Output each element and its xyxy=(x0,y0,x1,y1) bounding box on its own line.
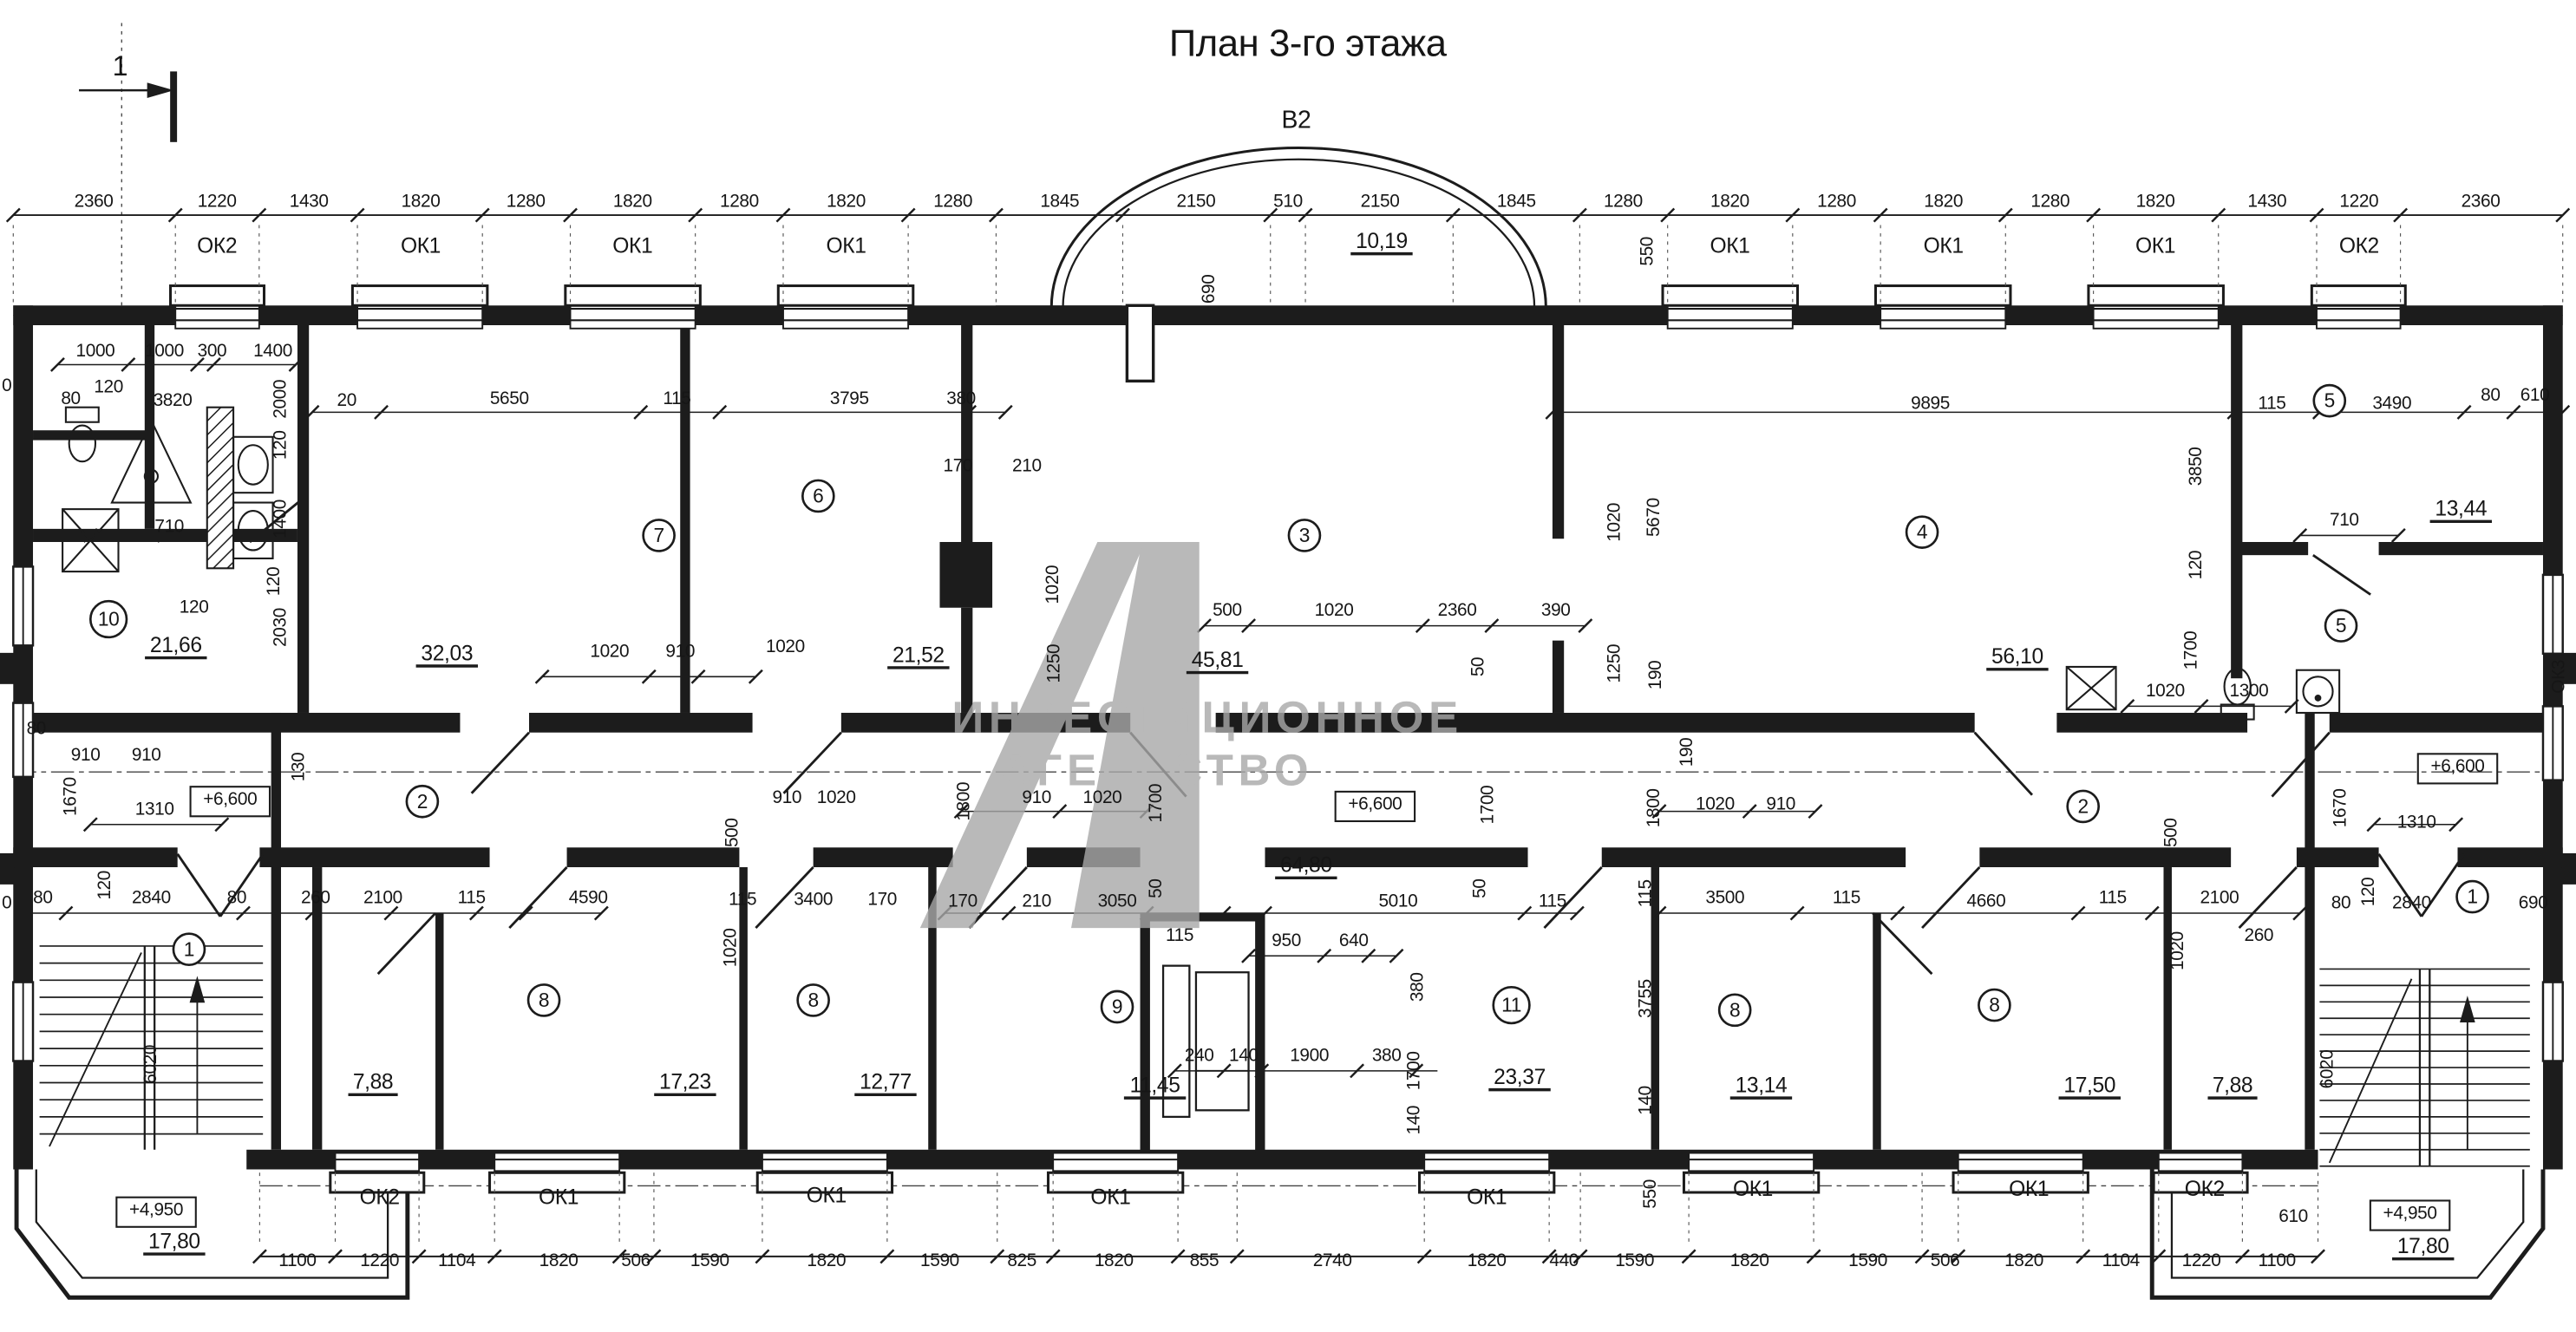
room-number: 8 xyxy=(1989,994,1999,1016)
dimension-label: ОК1 xyxy=(401,235,441,258)
wall xyxy=(996,305,1122,325)
wall xyxy=(567,847,740,867)
dimension-label: ОК1 xyxy=(1924,235,1964,258)
wall xyxy=(529,713,753,733)
room-number: 8 xyxy=(808,989,819,1011)
room-number: 8 xyxy=(539,989,549,1011)
dimension-label: 1820 xyxy=(2004,1250,2043,1270)
room-number: 3 xyxy=(1299,524,1310,546)
dimension-label: ОК1 xyxy=(1710,235,1749,258)
dimension-label: 1020 xyxy=(721,928,741,967)
dimension-label: 1100 xyxy=(2259,1250,2296,1270)
dimension-label: ОК2 xyxy=(2339,235,2379,258)
dimension-label: 1820 xyxy=(1468,1250,1507,1270)
dimension-label: 120 xyxy=(180,597,209,617)
dimension-label: 1670 xyxy=(60,777,80,816)
dimension-label: 910 xyxy=(1766,794,1795,814)
dimension-label: 140 xyxy=(1636,1086,1656,1115)
dimension-label: 21,66 xyxy=(150,634,202,657)
dimension-label: 20 xyxy=(337,390,356,410)
dimension-label: 1430 xyxy=(290,192,329,212)
dimension-label: 1430 xyxy=(2247,192,2286,212)
dimension-label: 4660 xyxy=(1967,891,2006,911)
dimension-label: ОК1 xyxy=(1090,1185,1130,1209)
dimension-label: 3795 xyxy=(830,388,869,408)
wall xyxy=(2238,542,2308,555)
dimension-label: 3850 xyxy=(2186,447,2206,486)
dimension-label: 115 xyxy=(1166,925,1193,945)
dimension-label: 140 xyxy=(1229,1045,1259,1065)
dimension-label: 190 xyxy=(1677,738,1697,767)
dimension-label: В2 xyxy=(1281,107,1311,134)
dimension-label: 1845 xyxy=(1497,192,1536,212)
dimension-label: 80 xyxy=(61,388,80,408)
dimension-label: 1000 xyxy=(76,341,115,361)
dimension-label: 1820 xyxy=(1924,192,1963,212)
dimension-label: 1820 xyxy=(1710,192,1749,212)
dimension-label: 690 xyxy=(2519,892,2548,912)
dimension-label: 3490 xyxy=(2372,394,2411,414)
dimension-label: 1310 xyxy=(135,799,174,819)
dimension-label: 140 xyxy=(1404,1106,1424,1135)
dimension-label: 2360 xyxy=(2462,192,2501,212)
stairs xyxy=(40,946,2530,1166)
dimension-label: 1280 xyxy=(1817,192,1856,212)
dimension-label: 1020 xyxy=(766,637,805,656)
dimension-label: 120 xyxy=(271,430,291,460)
dimension-label: 3755 xyxy=(1636,979,1656,1018)
dimension-label: 1590 xyxy=(1848,1250,1887,1270)
dimension-label: ОК2 xyxy=(360,1185,400,1209)
dimension-label: 500 xyxy=(1213,600,1242,620)
dimension-label: 17,80 xyxy=(148,1230,200,1253)
dimension-label: 1280 xyxy=(2030,192,2069,212)
wall xyxy=(1873,913,1880,1150)
wall xyxy=(1602,847,1906,867)
dimension-label: +4,950 xyxy=(129,1200,183,1220)
text-labels: 2360122014301820128018201280182012801845… xyxy=(2,107,2569,1271)
dimension-label: 50 xyxy=(1468,657,1487,676)
dimension-label: +6,600 xyxy=(1348,794,1402,814)
room-number: 9 xyxy=(1112,996,1122,1018)
dimension-label: 610 xyxy=(2279,1206,2308,1226)
wall xyxy=(739,867,747,1150)
dimension-label: 1820 xyxy=(1095,1250,1134,1270)
wall xyxy=(33,430,148,440)
dimension-label: 910 xyxy=(132,745,161,765)
dimension-label: 260 xyxy=(2245,925,2274,945)
wall xyxy=(13,713,460,733)
dimension-label: 2150 xyxy=(1177,192,1216,212)
wall xyxy=(1141,913,1150,1153)
dimension-label: 1250 xyxy=(1605,644,1625,683)
wall xyxy=(1255,913,1265,1153)
dimension-label: 1020 xyxy=(817,787,856,807)
room-number: 6 xyxy=(813,485,823,507)
dimension-label: 115 xyxy=(2099,888,2127,908)
dimension-label: 510 xyxy=(1273,192,1303,212)
wall xyxy=(1979,847,2231,867)
wall xyxy=(1553,641,1564,713)
dimension-label: 855 xyxy=(1190,1250,1219,1270)
dimension-label: 1820 xyxy=(827,192,866,212)
dimension-label: ОК1 xyxy=(539,1185,579,1209)
dimension-label: 50 xyxy=(1469,878,1489,898)
dimension-label: 115 xyxy=(663,388,690,408)
dimension-label: 115 xyxy=(458,888,486,908)
dimension-label: 0 xyxy=(2,892,11,912)
dimension-label: 1020 xyxy=(1605,503,1625,542)
wall xyxy=(13,847,177,867)
wall xyxy=(2457,847,2562,867)
dimension-label: 240 xyxy=(1185,1045,1214,1065)
dimension-label: 115 xyxy=(2258,394,2285,414)
dimension-label: 1020 xyxy=(1043,565,1062,604)
dimension-label: 710 xyxy=(2330,510,2359,530)
wall xyxy=(297,325,309,713)
watermark: ИНВЕСТИЦИОННОЕ АГЕНТСТВО xyxy=(920,542,1463,928)
dimension-label: 2360 xyxy=(1438,600,1477,620)
dimension-label: 64,80 xyxy=(1280,854,1332,878)
dimension-label: 10,19 xyxy=(1356,230,1408,253)
dimension-label: 170 xyxy=(867,890,897,910)
dimension-label: 7,88 xyxy=(353,1071,393,1094)
wall xyxy=(435,913,443,1150)
dimension-label: 1820 xyxy=(807,1250,846,1270)
dimension-label: 910 xyxy=(665,642,695,662)
floor-plan-page: { "title": "План 3-го этажа", "section_m… xyxy=(0,0,2576,1332)
wall xyxy=(1553,325,1564,539)
dimension-label: 1400 xyxy=(271,499,291,539)
dimension-label: 6020 xyxy=(141,1045,160,1084)
dimension-label: 115 xyxy=(1833,888,1860,908)
dimension-label: 115 xyxy=(1636,879,1656,907)
dimension-label: 1670 xyxy=(2331,788,2350,827)
dimension-label: 550 xyxy=(1637,237,1657,266)
dimension-label: 2030 xyxy=(271,608,291,647)
dimension-label: 3400 xyxy=(794,890,833,910)
dimension-label: 120 xyxy=(95,871,114,900)
dimension-label: 1020 xyxy=(2146,681,2185,701)
dimension-label: 380 xyxy=(1372,1045,1402,1065)
dimension-label: 1280 xyxy=(720,192,759,212)
dimension-label: 1310 xyxy=(2397,813,2436,832)
dimension-label: 1250 xyxy=(1044,644,1064,683)
dimension-label: 1280 xyxy=(507,192,546,212)
dimension-label: 170 xyxy=(944,456,973,476)
dimension-label: +6,600 xyxy=(203,789,257,809)
dimension-label: +6,600 xyxy=(2430,756,2484,776)
dimension-label: 910 xyxy=(1022,787,1051,807)
dimension-label: 690 xyxy=(1199,275,1219,304)
dimension-label: 500 xyxy=(2161,818,2181,847)
room-number: 4 xyxy=(1917,520,1927,543)
dimension-label: 910 xyxy=(773,787,802,807)
dimension-label: 3820 xyxy=(154,390,193,410)
dimension-label: 440 xyxy=(1549,1250,1579,1270)
bay-arc xyxy=(1051,147,1546,307)
dimension-label: 32,03 xyxy=(421,642,473,665)
dimension-label: 7,88 xyxy=(2213,1074,2252,1097)
dimension-label: 1700 xyxy=(1478,786,1498,825)
vent-pier xyxy=(1127,305,1153,381)
dimension-label: 1280 xyxy=(933,192,972,212)
dimension-label: ОК2 xyxy=(197,235,237,258)
dimension-label: 910 xyxy=(71,745,101,765)
room-number: 11 xyxy=(1501,994,1521,1016)
dimension-label: 1220 xyxy=(198,192,237,212)
dimension-label: 1020 xyxy=(1315,600,1354,620)
dimension-label: 1020 xyxy=(2167,931,2187,970)
dimension-label: 380 xyxy=(1407,972,1427,1002)
dimension-label: 710 xyxy=(154,517,184,537)
room-number: 1 xyxy=(2467,885,2477,908)
dimension-label: 190 xyxy=(1645,661,1665,690)
room-number: 5 xyxy=(2336,614,2346,637)
room-number: 7 xyxy=(653,524,664,546)
dimension-label: 210 xyxy=(1012,456,1042,476)
dimension-label: 950 xyxy=(1272,930,1301,950)
dimension-label: 120 xyxy=(2358,878,2378,907)
dimension-label: 550 xyxy=(1640,1179,1660,1209)
dimension-label: 5670 xyxy=(1644,498,1664,537)
wall xyxy=(2305,713,2314,1150)
dimension-label: 120 xyxy=(2186,551,2206,580)
dimension-label: 610 xyxy=(2520,385,2550,405)
wall xyxy=(814,847,953,867)
dimension-label: 4590 xyxy=(569,888,608,908)
dimension-label: 1000 xyxy=(145,341,184,361)
toilet-tank-icon xyxy=(66,408,99,422)
dimension-label: 1700 xyxy=(1146,784,1166,823)
wall xyxy=(2231,325,2242,678)
section-mark xyxy=(79,72,176,141)
watermark-line1: ИНВЕСТИЦИОННОЕ xyxy=(951,693,1462,742)
room-number: 5 xyxy=(2324,389,2335,412)
dimension-label: 2840 xyxy=(2392,892,2431,912)
dimension-label: 1845 xyxy=(1040,192,1079,212)
dimension-label: 2150 xyxy=(1361,192,1400,212)
dimension-label: 1900 xyxy=(1290,1045,1329,1065)
dimension-label: 300 xyxy=(198,341,227,361)
dimension-label: 13,44 xyxy=(2435,498,2487,521)
dimension-label: 0 xyxy=(2,375,11,395)
dimension-label: 115 xyxy=(1539,891,1566,911)
dimension-label: 50 xyxy=(1146,878,1166,898)
dimension-label: 1220 xyxy=(2182,1250,2221,1270)
dimension-label: 1590 xyxy=(920,1250,959,1270)
dimension-label: 80 xyxy=(27,719,46,739)
dimension-label: 2000 xyxy=(271,380,291,419)
dimension-label: 5650 xyxy=(490,388,529,408)
dimension-label: 500 xyxy=(722,818,742,847)
dimension-label: ОК1 xyxy=(807,1184,847,1207)
wall xyxy=(2379,542,2543,555)
dimension-label: 1700 xyxy=(2180,631,2200,670)
dimension-label: 380 xyxy=(946,388,976,408)
dimension-label: 1590 xyxy=(1615,1250,1654,1270)
dimension-label: 2100 xyxy=(363,888,402,908)
dimension-label: 1104 xyxy=(2102,1250,2140,1270)
dimension-label: 506 xyxy=(621,1250,651,1270)
dimension-label: 506 xyxy=(1931,1250,1960,1270)
dimension-label: 1100 xyxy=(278,1250,316,1270)
wall xyxy=(939,542,992,608)
bathtub-icon xyxy=(207,408,233,569)
room-number: 2 xyxy=(417,790,428,813)
dimension-label: 12,77 xyxy=(860,1071,912,1094)
dimension-label: 45,81 xyxy=(1192,649,1244,672)
dimension-label: 825 xyxy=(1007,1250,1036,1270)
dimension-label: 1820 xyxy=(613,192,652,212)
dimension-label: 170 xyxy=(948,891,977,911)
dimension-label: 6020 xyxy=(2318,1050,2337,1089)
dimension-label: 1020 xyxy=(1083,787,1122,807)
dimension-label: 1820 xyxy=(2136,192,2175,212)
room-number: 2 xyxy=(2078,795,2089,818)
dimension-label: 9895 xyxy=(1911,394,1950,414)
dimension-label: ОК1 xyxy=(1733,1178,1773,1201)
room-number: 10 xyxy=(98,608,120,630)
dimension-label: 1220 xyxy=(2339,192,2378,212)
wall xyxy=(259,847,489,867)
dimension-label: ОК3 xyxy=(2549,660,2569,694)
dimension-label: 1020 xyxy=(590,642,629,662)
dimension-label: ОК1 xyxy=(827,235,866,258)
dimension-label: 1104 xyxy=(438,1250,475,1270)
dimension-label: 17,80 xyxy=(2397,1235,2449,1258)
dimension-label: 1820 xyxy=(1730,1250,1769,1270)
dimension-label: +4,950 xyxy=(2383,1203,2437,1223)
dimension-label: 80 xyxy=(2331,892,2350,912)
dimension-label: 56,10 xyxy=(1991,645,2043,669)
dimension-label: 17,23 xyxy=(659,1071,711,1094)
wall xyxy=(2163,867,2171,1150)
dimension-label: 21,52 xyxy=(892,643,945,667)
dimension-label: 11,45 xyxy=(1130,1074,1180,1097)
dimension-label: ОК2 xyxy=(2185,1178,2225,1201)
dimension-label: 1280 xyxy=(1604,192,1643,212)
room-number: 8 xyxy=(1729,998,1740,1021)
room-number: 1 xyxy=(184,937,194,960)
dimension-label: 3500 xyxy=(1705,888,1744,908)
dimension-label: 1820 xyxy=(539,1250,579,1270)
drawing-title: План 3-го этажа xyxy=(1169,23,1448,64)
dimension-label: 1820 xyxy=(402,192,441,212)
dimension-label: 2360 xyxy=(75,192,114,212)
dimension-label: 1020 xyxy=(1696,794,1735,814)
dimension-label: 1590 xyxy=(690,1250,729,1270)
dimension-label: 17,50 xyxy=(2063,1074,2115,1097)
dimension-label: 13,14 xyxy=(1736,1074,1788,1097)
dimension-label: 1220 xyxy=(360,1250,399,1270)
dimension-label: ОК1 xyxy=(1467,1185,1507,1209)
dimension-label: 115 xyxy=(729,890,756,910)
dimension-label: 390 xyxy=(1541,600,1571,620)
dimension-label: 1400 xyxy=(253,341,292,361)
dimension-label: 2840 xyxy=(132,888,171,908)
dimension-label: 2100 xyxy=(2200,888,2239,908)
dimension-label: 1800 xyxy=(1644,788,1664,827)
dimension-label: 120 xyxy=(264,567,284,597)
section-number: 1 xyxy=(113,50,128,82)
dimension-label: 5010 xyxy=(1378,891,1417,911)
wall xyxy=(2330,713,2563,733)
dimension-label: 260 xyxy=(301,888,330,908)
wall xyxy=(961,325,972,542)
dimension-label: 640 xyxy=(1339,930,1369,950)
dimension-label: ОК1 xyxy=(612,235,652,258)
floor-plan-drawing: ИНВЕСТИЦИОННОЕ АГЕНТСТВО 236012201430182… xyxy=(0,0,2576,1332)
dimension-label: 1700 xyxy=(1404,1051,1424,1090)
dimension-label: 80 xyxy=(33,888,52,908)
dimension-label: 1300 xyxy=(2230,681,2269,701)
dimension-label: 210 xyxy=(1022,891,1051,911)
dimension-label: 23,37 xyxy=(1494,1066,1546,1089)
dimension-label: ОК1 xyxy=(2135,235,2175,258)
wall xyxy=(1546,305,1667,325)
dimension-label: 2740 xyxy=(1313,1250,1352,1270)
dimension-label: 120 xyxy=(94,377,123,397)
dimension-label: ОК1 xyxy=(2009,1178,2049,1201)
wall xyxy=(2056,713,2247,733)
dimension-label: 80 xyxy=(227,888,246,908)
dimension-label: 130 xyxy=(289,753,309,782)
dimension-label: 3050 xyxy=(1098,891,1137,911)
wall xyxy=(271,713,281,1150)
dimension-label: 80 xyxy=(2481,385,2500,405)
dimension-label: 1800 xyxy=(954,782,974,821)
